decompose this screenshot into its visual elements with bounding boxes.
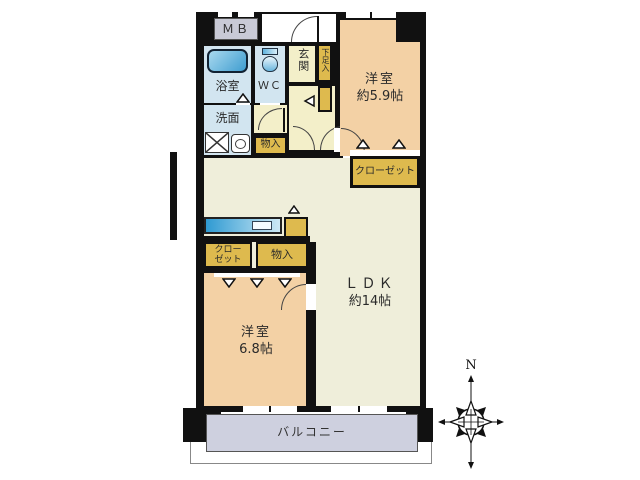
- storage2-label: 物入: [258, 248, 306, 262]
- door-leaf-marker: [303, 94, 315, 108]
- bedroom1-name: 洋室: [340, 72, 420, 88]
- bathtub-icon: [207, 49, 248, 73]
- sliding-door-marker: [278, 278, 292, 288]
- bedroom2-track: [214, 273, 300, 277]
- sliding-door-marker: [250, 278, 264, 288]
- shoe-cabinet-label: 下足入: [320, 48, 330, 72]
- washer-pan-icon: [205, 132, 229, 153]
- entrance-door-leaf: [317, 16, 319, 42]
- window-tick: [358, 406, 360, 412]
- north-label: N: [438, 358, 504, 374]
- closet1-label: クローゼット: [353, 166, 417, 179]
- hall-cabinet: [318, 86, 332, 112]
- closet2-label-line2: ゼット: [206, 255, 250, 266]
- room-washroom: 洗面: [204, 105, 251, 155]
- washroom-label: 洗面: [204, 111, 251, 126]
- corridor-door-leaf: [283, 108, 285, 132]
- kitchen-sink-icon: [252, 221, 272, 230]
- balcony: バルコニー: [206, 414, 418, 452]
- wall-segment: [306, 242, 316, 406]
- meter-box-label: ＭＢ: [215, 22, 257, 37]
- hall-storage: 物入: [254, 136, 287, 155]
- closet2: クロー ゼット: [204, 242, 252, 268]
- sink-icon: [231, 134, 250, 153]
- balcony-label: バルコニー: [207, 425, 417, 440]
- bedroom1-size: 約5.9帖: [340, 89, 420, 105]
- toilet-icon: [262, 48, 278, 55]
- bedroom2-size: 6.8帖: [204, 342, 308, 358]
- floor-plan: ＭＢ 浴室 ＷＣ 玄関 下足入 物入 洗面: [0, 0, 640, 480]
- meter-box: ＭＢ: [214, 18, 258, 40]
- shoe-cabinet: 下足入: [317, 44, 332, 82]
- sliding-door-marker: [288, 205, 300, 214]
- bathroom-label: 浴室: [204, 79, 251, 94]
- compass-rose: N: [438, 358, 504, 470]
- sliding-door-marker: [356, 139, 370, 149]
- wc-label: ＷＣ: [255, 79, 285, 93]
- sliding-door-marker: [222, 278, 236, 288]
- left-wall-bar: [170, 152, 177, 240]
- room-wc: ＷＣ: [255, 46, 285, 103]
- bedroom1-door-gap: [334, 128, 340, 152]
- ldk-size: 約14帖: [330, 294, 410, 310]
- kitchen-counter: [204, 217, 282, 234]
- storage2: 物入: [256, 242, 308, 268]
- genkan-label: 玄関: [296, 48, 310, 72]
- mb-notch: [218, 12, 232, 17]
- kitchen-side-cabinet: [284, 217, 308, 238]
- window-tick: [269, 406, 271, 412]
- toilet-icon: [262, 56, 278, 72]
- compass-star-icon: [438, 375, 504, 469]
- window-tick: [370, 12, 372, 18]
- ldk-name: ＬＤＫ: [330, 276, 410, 294]
- mb-notch: [238, 12, 254, 17]
- sliding-door-marker: [392, 139, 406, 149]
- hall-storage-label: 物入: [256, 139, 285, 152]
- room-genkan: 玄関: [289, 46, 315, 82]
- bedroom2-name: 洋室: [204, 325, 308, 341]
- bedroom2-door-gap: [306, 284, 316, 310]
- closet1: クローゼット: [350, 156, 420, 188]
- bathroom-folding-door-marker: [236, 93, 250, 103]
- corner-block: [396, 12, 426, 42]
